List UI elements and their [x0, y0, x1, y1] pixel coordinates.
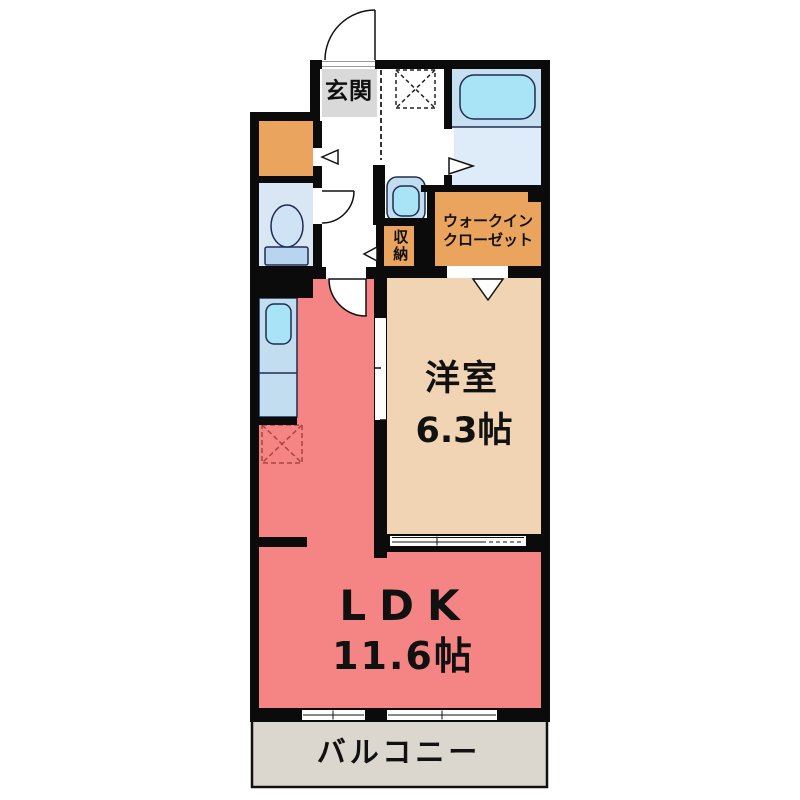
ldk-label: LDK: [339, 583, 472, 629]
door-marker-shoe-closet: [322, 150, 338, 164]
room-bath-lower: [452, 127, 541, 185]
ldk-size: 11.6帖: [332, 636, 474, 678]
washer-space-symbol: [396, 70, 435, 108]
room-western: [387, 278, 541, 536]
washbasin-fixture: [387, 177, 425, 222]
genkan-label: 玄関: [325, 79, 373, 104]
floorplan-graphic: [0, 0, 800, 800]
western-room-size: 6.3帖: [415, 412, 512, 451]
floorplan: 玄関 収納 ウォークイン クローゼット 洋室 6.3帖 LDK 11.6帖 バル…: [0, 0, 800, 800]
door-marker-washroom: [364, 247, 377, 261]
toilet-door-arc: [322, 191, 354, 223]
balcony-label: バルコニー: [317, 737, 481, 769]
storage-label: 収納: [392, 229, 409, 263]
bathtub-fixture: [460, 75, 535, 119]
walk-in-closet-label: ウォークイン クローゼット: [443, 212, 533, 250]
western-room-label: 洋室: [425, 360, 499, 399]
walk-in-closet-label-line1: ウォークイン: [443, 212, 533, 231]
room-shoe-closet: [259, 121, 313, 176]
entrance-door-arc: [322, 10, 375, 67]
walk-in-closet-label-line2: クローゼット: [443, 231, 533, 250]
kitchen-sink-fixture: [266, 304, 291, 344]
